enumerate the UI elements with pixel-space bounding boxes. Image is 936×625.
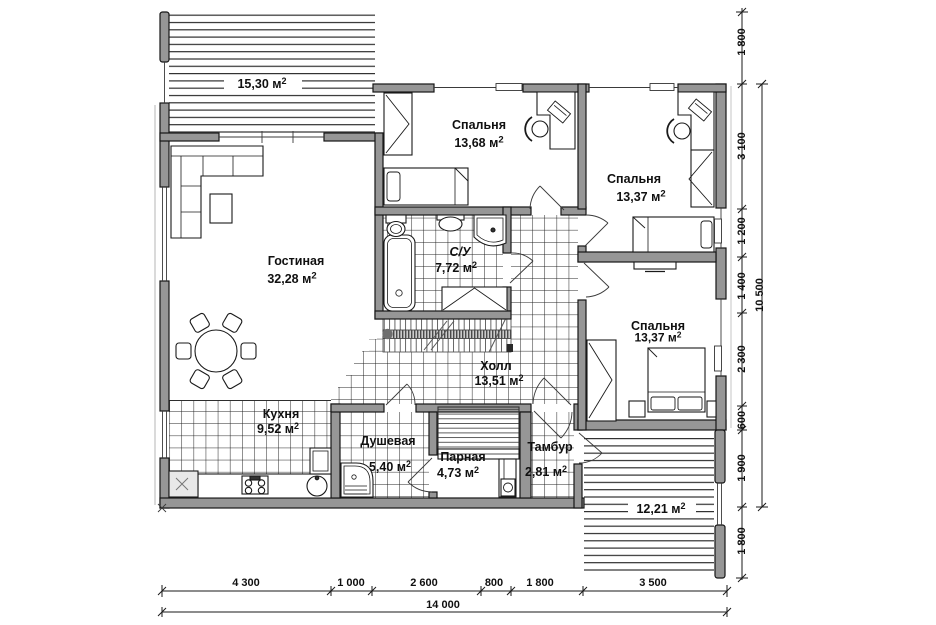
svg-text:3 500: 3 500 [639,577,667,589]
svg-text:1 800: 1 800 [736,28,748,56]
svg-text:14 000: 14 000 [426,599,460,611]
svg-text:Парная: Парная [440,450,485,464]
svg-text:800: 800 [485,577,503,589]
svg-text:9,52 м2: 9,52 м2 [257,421,299,436]
svg-text:2,81 м2: 2,81 м2 [525,464,567,479]
svg-text:12,21 м2: 12,21 м2 [636,501,685,516]
svg-text:Душевая: Душевая [360,434,415,448]
svg-text:13,37 м2: 13,37 м2 [635,330,682,345]
svg-text:1 400: 1 400 [736,272,748,300]
svg-text:600: 600 [736,411,748,429]
svg-text:Спальня: Спальня [607,172,661,186]
svg-text:1 800: 1 800 [736,527,748,555]
svg-text:13,51 м2: 13,51 м2 [474,373,523,388]
svg-text:2 600: 2 600 [410,577,438,589]
svg-text:1 200: 1 200 [736,217,748,245]
svg-text:Кухня: Кухня [263,407,300,421]
svg-text:Спальня: Спальня [452,118,506,132]
svg-text:32,28 м2: 32,28 м2 [267,271,316,287]
svg-text:С/У: С/У [450,245,473,259]
svg-text:5,40 м2: 5,40 м2 [369,459,411,474]
svg-text:15,30 м2: 15,30 м2 [237,76,286,91]
svg-text:Тамбур: Тамбур [527,440,573,454]
svg-text:13,37 м2: 13,37 м2 [616,189,665,205]
svg-text:10 500: 10 500 [754,278,766,312]
svg-text:4 300: 4 300 [232,577,260,589]
svg-text:Гостиная: Гостиная [268,254,325,268]
svg-text:13,68 м2: 13,68 м2 [454,135,503,151]
svg-text:Холл: Холл [480,359,511,373]
svg-text:2 300: 2 300 [736,345,748,373]
svg-text:1 900: 1 900 [736,454,748,482]
svg-text:7,72 м2: 7,72 м2 [435,260,477,275]
svg-text:1 800: 1 800 [526,577,554,589]
svg-text:1 000: 1 000 [337,577,365,589]
svg-text:4,73 м2: 4,73 м2 [437,465,479,480]
svg-text:3 100: 3 100 [736,132,748,160]
